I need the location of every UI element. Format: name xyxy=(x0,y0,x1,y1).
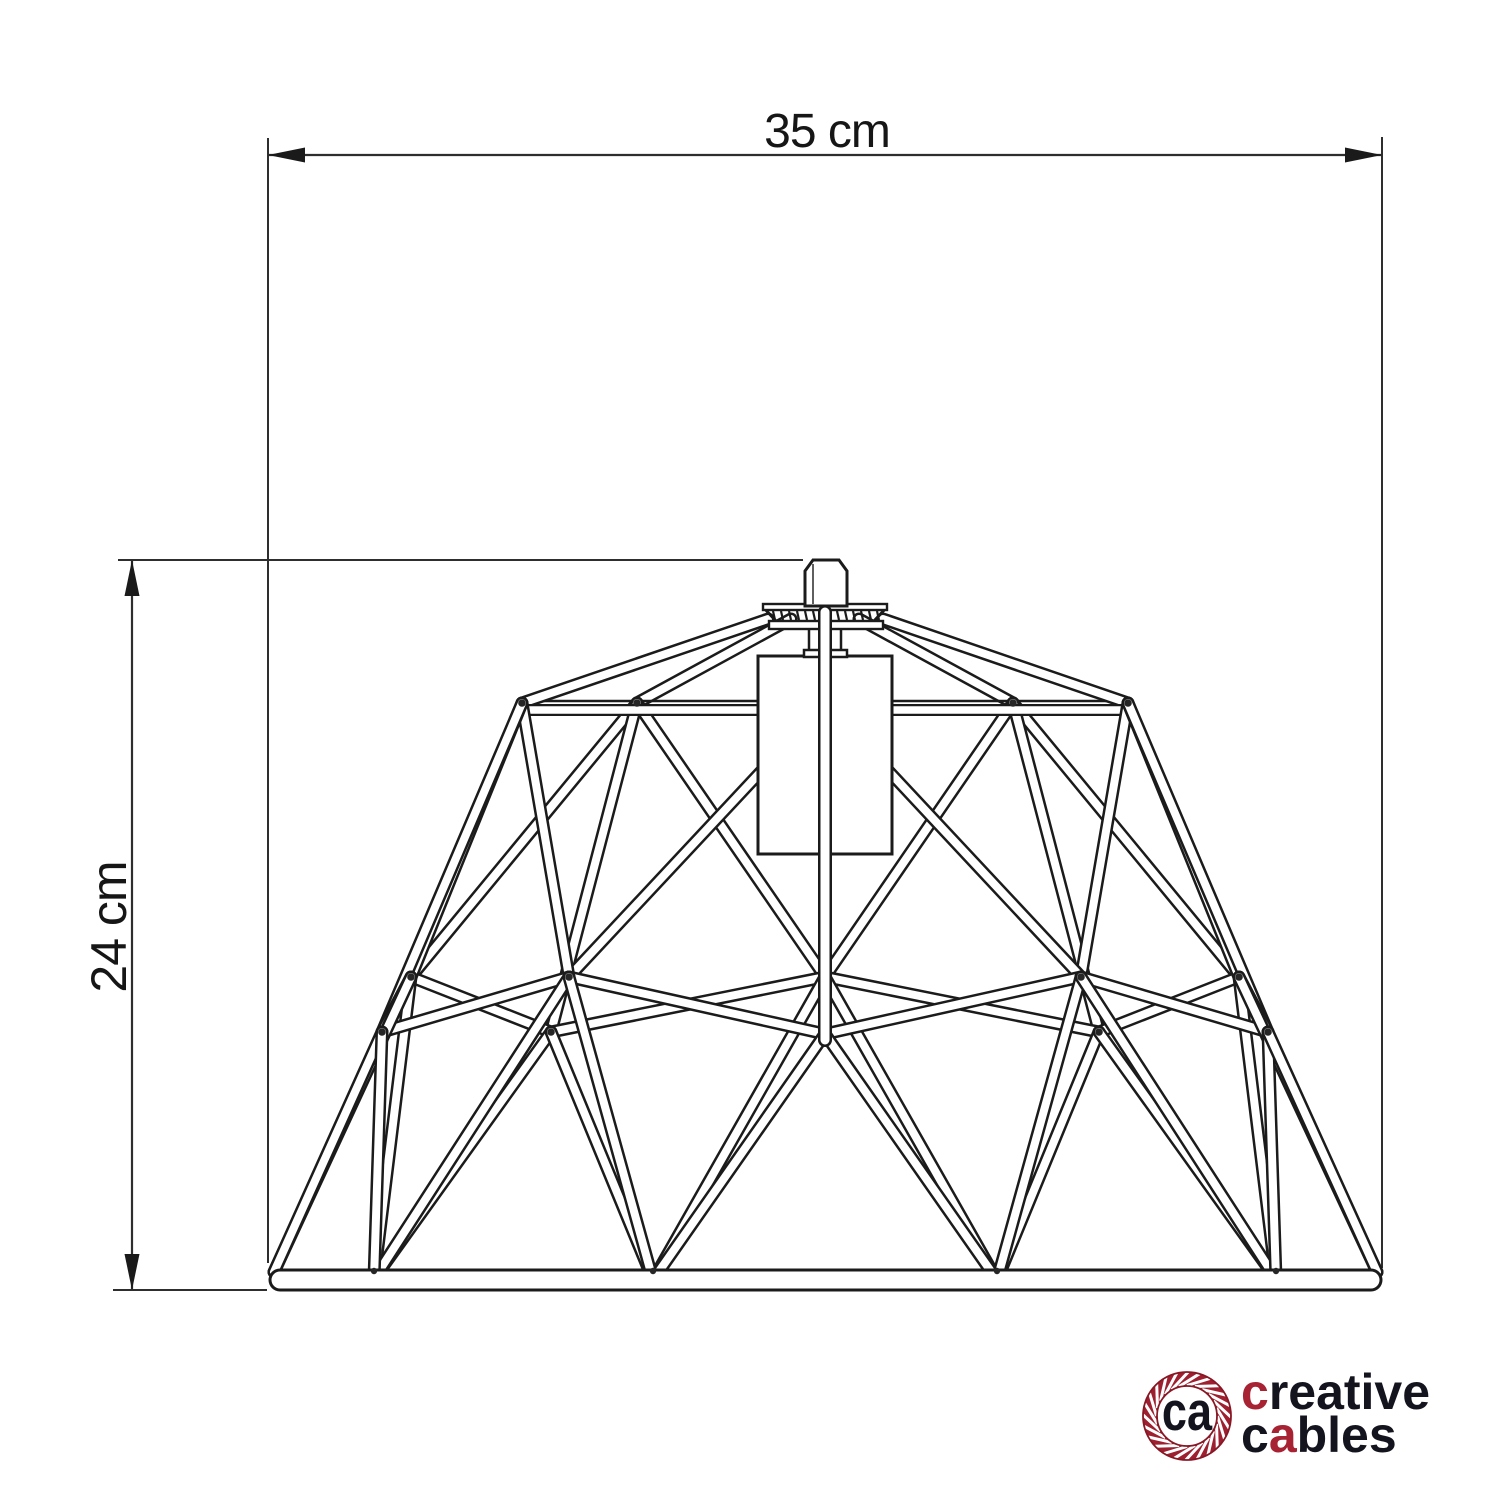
svg-text:35 cm: 35 cm xyxy=(764,105,890,158)
svg-text:ca: ca xyxy=(1162,1380,1213,1442)
svg-text:24 cm: 24 cm xyxy=(81,861,137,992)
svg-text:cables: cables xyxy=(1241,1407,1397,1463)
